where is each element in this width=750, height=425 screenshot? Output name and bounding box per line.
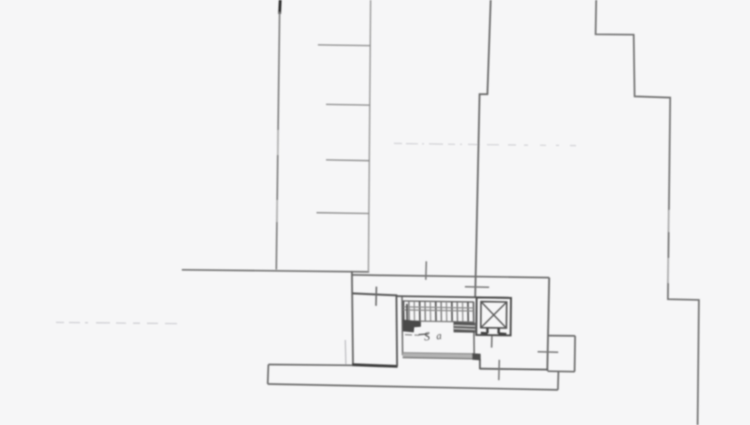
svg-text:a: a (436, 331, 442, 342)
svg-text:S: S (423, 329, 430, 343)
